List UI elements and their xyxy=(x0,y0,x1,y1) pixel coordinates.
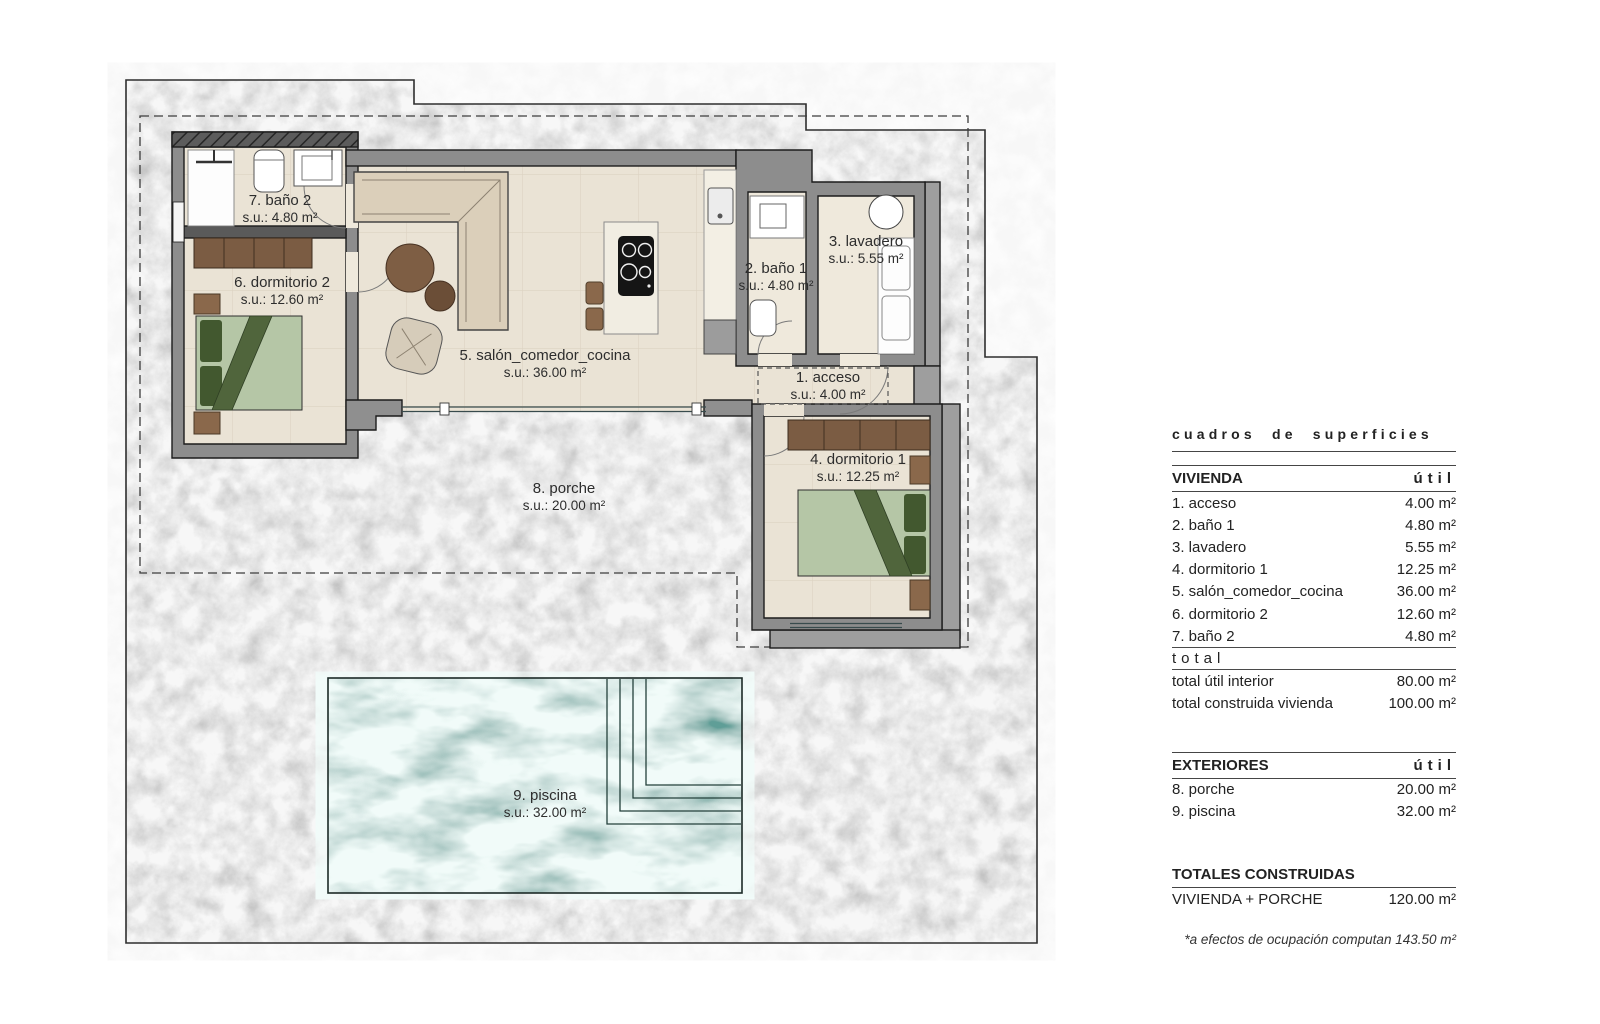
vivienda-table-header: VIVIENDA útil xyxy=(1172,466,1456,492)
totales-table: TOTALES CONSTRUIDAS VIVIENDA + PORCHE 12… xyxy=(1172,861,1456,910)
table-row: 2. baño 1 4.80 m² xyxy=(1172,514,1456,536)
row-value: 4.80 m² xyxy=(1405,628,1456,645)
room-label-porche: 8. porche s.u.: 20.00 m² xyxy=(523,480,606,514)
room-name: 9. piscina xyxy=(504,787,587,805)
row-label: 8. porche xyxy=(1172,781,1235,798)
table-row: 3. lavadero 5.55 m² xyxy=(1172,536,1456,558)
totales-table-header: TOTALES CONSTRUIDAS xyxy=(1172,861,1456,888)
right-block-outer-band xyxy=(925,182,940,366)
vivienda-table: VIVIENDA útil 1. acceso 4.00 m² 2. baño … xyxy=(1172,465,1456,715)
row-label: 7. baño 2 xyxy=(1172,628,1235,645)
row-value: 4.00 m² xyxy=(1405,495,1456,512)
dorm1-outer-band-bottom xyxy=(770,630,960,648)
room-label-salon: 5. salón_comedor_cocina s.u.: 36.00 m² xyxy=(460,347,631,381)
room-name: 5. salón_comedor_cocina xyxy=(460,347,631,365)
room-label-banyo2: 7. baño 2 s.u.: 4.80 m² xyxy=(242,192,317,226)
room-area: s.u.: 20.00 m² xyxy=(523,498,606,514)
room-name: 6. dormitorio 2 xyxy=(234,274,330,292)
row-value: 12.60 m² xyxy=(1397,606,1456,623)
table-row-total: total construida vivienda 100.00 m² xyxy=(1172,693,1456,715)
row-label: 1. acceso xyxy=(1172,495,1236,512)
exteriores-table-header: EXTERIORES útil xyxy=(1172,753,1456,779)
row-value: 36.00 m² xyxy=(1397,583,1456,600)
table-row-total: total útil interior 80.00 m² xyxy=(1172,670,1456,692)
acceso-side-band xyxy=(914,366,940,408)
row-value: 80.00 m² xyxy=(1397,673,1456,690)
table-row: 5. salón_comedor_cocina 36.00 m² xyxy=(1172,581,1456,603)
row-value: 32.00 m² xyxy=(1397,803,1456,820)
room-label-piscina: 9. piscina s.u.: 32.00 m² xyxy=(504,787,587,821)
window-left-wing xyxy=(173,202,184,242)
room-label-dormitorio1: 4. dormitorio 1 s.u.: 12.25 m² xyxy=(810,451,906,485)
room-area: s.u.: 32.00 m² xyxy=(504,805,587,821)
row-value: 100.00 m² xyxy=(1388,695,1456,712)
room-area: s.u.: 12.25 m² xyxy=(810,469,906,485)
row-value: 5.55 m² xyxy=(1405,539,1456,556)
table-row: VIVIENDA + PORCHE 120.00 m² xyxy=(1172,888,1456,910)
mullion xyxy=(440,403,449,415)
room-area: s.u.: 5.55 m² xyxy=(828,251,903,267)
util-header-label: útil xyxy=(1414,757,1457,774)
row-label: 9. piscina xyxy=(1172,803,1235,820)
row-label: total construida vivienda xyxy=(1172,695,1333,712)
room-name: 8. porche xyxy=(523,480,606,498)
total-divider: total xyxy=(1172,647,1456,670)
util-header-label: útil xyxy=(1414,470,1457,487)
vivienda-header-label: VIVIENDA xyxy=(1172,470,1243,487)
room-area: s.u.: 12.60 m² xyxy=(234,292,330,308)
row-label: 5. salón_comedor_cocina xyxy=(1172,583,1343,600)
room-label-banyo1: 2. baño 1 s.u.: 4.80 m² xyxy=(738,260,813,294)
dorm2-furniture xyxy=(194,238,312,434)
salon-top-wall xyxy=(346,150,736,166)
exteriores-table: EXTERIORES útil 8. porche 20.00 m² 9. pi… xyxy=(1172,752,1456,823)
totales-header-label: TOTALES CONSTRUIDAS xyxy=(1172,866,1355,883)
table-row: 8. porche 20.00 m² xyxy=(1172,779,1456,801)
row-value: 4.80 m² xyxy=(1405,517,1456,534)
row-value: 20.00 m² xyxy=(1397,781,1456,798)
exteriores-header-label: EXTERIORES xyxy=(1172,757,1269,774)
row-label: 6. dormitorio 2 xyxy=(1172,606,1268,623)
row-label: VIVIENDA + PORCHE xyxy=(1172,891,1322,908)
table-row: 4. dormitorio 1 12.25 m² xyxy=(1172,559,1456,581)
row-label: total útil interior xyxy=(1172,673,1274,690)
row-label: 4. dormitorio 1 xyxy=(1172,561,1268,578)
room-area: s.u.: 4.80 m² xyxy=(738,278,813,294)
room-label-acceso: 1. acceso s.u.: 4.00 m² xyxy=(790,369,865,403)
panel-title: cuadros de superficies xyxy=(1172,426,1456,452)
pool xyxy=(328,678,742,893)
row-label: 3. lavadero xyxy=(1172,539,1246,556)
surfaces-panel: cuadros de superficies VIVIENDA útil 1. … xyxy=(1172,426,1456,947)
occupancy-footnote: *a efectos de ocupación computan 143.50 … xyxy=(1172,932,1456,947)
row-value: 120.00 m² xyxy=(1388,891,1456,908)
table-row: 9. piscina 32.00 m² xyxy=(1172,801,1456,823)
left-wing-hatched-band xyxy=(172,132,358,147)
room-area: s.u.: 4.00 m² xyxy=(790,387,865,403)
mullion xyxy=(692,403,701,415)
room-area: s.u.: 36.00 m² xyxy=(460,365,631,381)
room-area: s.u.: 4.80 m² xyxy=(242,210,317,226)
dorm1-outer-band-right xyxy=(942,404,960,638)
partition-banyo2-dorm2 xyxy=(184,226,346,238)
room-name: 4. dormitorio 1 xyxy=(810,451,906,469)
table-row: 6. dormitorio 2 12.60 m² xyxy=(1172,603,1456,625)
row-value: 12.25 m² xyxy=(1397,561,1456,578)
room-label-dormitorio2: 6. dormitorio 2 s.u.: 12.60 m² xyxy=(234,274,330,308)
table-row: 7. baño 2 4.80 m² xyxy=(1172,625,1456,647)
room-name: 1. acceso xyxy=(790,369,865,387)
porch-wall-stub-right xyxy=(704,400,752,416)
room-name: 7. baño 2 xyxy=(242,192,317,210)
room-label-lavadero: 3. lavadero s.u.: 5.55 m² xyxy=(828,233,903,267)
row-label: 2. baño 1 xyxy=(1172,517,1235,534)
table-row: 1. acceso 4.00 m² xyxy=(1172,492,1456,514)
room-name: 2. baño 1 xyxy=(738,260,813,278)
sheet: 7. baño 2 s.u.: 4.80 m² 6. dormitorio 2 … xyxy=(0,0,1600,1024)
room-name: 3. lavadero xyxy=(828,233,903,251)
